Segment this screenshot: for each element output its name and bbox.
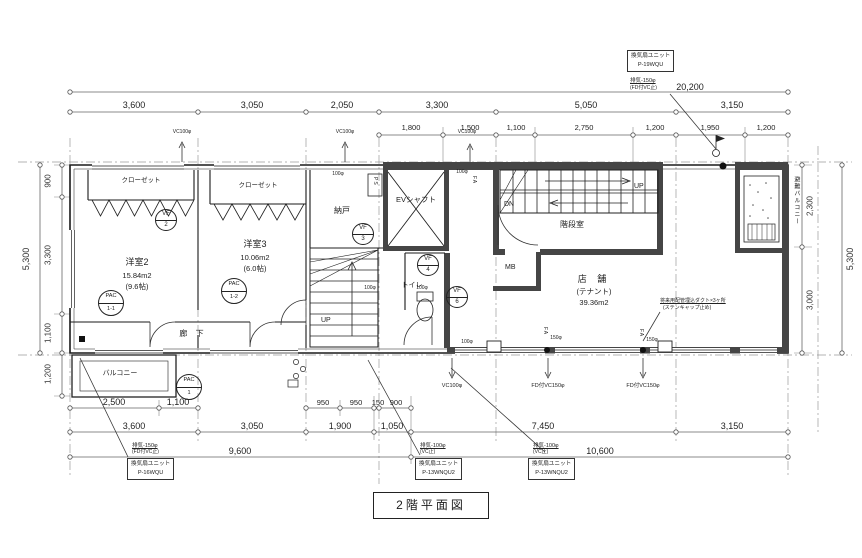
room-tenant-area: 39.36m2 xyxy=(579,299,608,307)
mb-label: MB xyxy=(505,264,516,272)
dim-b3-2: 10,600 xyxy=(586,447,614,457)
right-stairs xyxy=(500,170,658,213)
dim-top-sub-6: 1,950 xyxy=(701,124,720,132)
dim-right-seg-1: 2,300 xyxy=(806,196,815,216)
fan-unit-note-bottom-right: 換気扇ユニット P-13WNQU2 xyxy=(528,458,575,480)
pipe-fdvc150-2: FD付VC150φ xyxy=(626,383,659,389)
fan-unit-note-bottom-left: 換気扇ユニット P-16WQU xyxy=(127,458,174,480)
fan-unit-note-top-right: 換気扇ユニット P-19WQU xyxy=(627,50,674,72)
pipe-100-1: 100φ xyxy=(332,172,344,178)
pipe-100-5: 100φ xyxy=(461,340,473,346)
tenant-duct-note-2: (ステンキャップ止め) xyxy=(663,306,711,312)
room-closet-2: クローゼット xyxy=(239,182,278,189)
vf-3-symbol: VF3 xyxy=(352,223,374,245)
pipe-vc100-bottom: VC100φ xyxy=(442,383,462,389)
dim-top-main-2: 3,050 xyxy=(241,101,264,111)
ev-shaft xyxy=(388,172,444,246)
room-tenant-sub: (テナント) xyxy=(577,288,612,296)
room-corridor: 廊 下 xyxy=(179,330,206,339)
dim-top-main-1: 3,600 xyxy=(123,101,146,111)
room-stair-hall: 階段室 xyxy=(560,221,584,230)
ps-label: PS xyxy=(371,177,377,186)
fa-label-2: FA xyxy=(541,327,547,335)
room-ev-shaft: EVシャフト xyxy=(396,196,436,204)
dim-b2-5: 7,450 xyxy=(532,422,555,432)
dim-b1-5: 150 xyxy=(372,399,385,407)
pipe-150-2: 150φ xyxy=(646,338,658,344)
dim-top-main-6: 3,150 xyxy=(721,101,744,111)
dim-top-sub-5: 1,200 xyxy=(646,124,665,132)
pipe-note-bl-2: (FD付VC止) xyxy=(132,450,159,456)
fan-unit-note-bottom-mid: 換気扇ユニット P-13WNQU2 xyxy=(415,458,462,480)
dim-left-total: 5,300 xyxy=(21,248,31,271)
pipe-note-top-right-2: (FD付VC止) xyxy=(630,86,657,92)
pipe-note-bm-2: (VC止) xyxy=(420,450,435,456)
dim-b2-4: 1,050 xyxy=(381,422,404,432)
pac-1-symbol: PAC1 xyxy=(176,374,202,400)
room-yoshitsu2: 洋室2 xyxy=(125,258,148,268)
drawing-title: 2階平面図 xyxy=(373,492,489,519)
dim-top-sub-1: 1,800 xyxy=(402,124,421,132)
room-evac-balcony: 避難バルコニー xyxy=(792,176,799,225)
room-yoshitsu3-tatami: (6.0帖) xyxy=(244,265,267,273)
room-yoshitsu2-area: 15.84m2 xyxy=(122,272,151,280)
center-stairs xyxy=(310,248,378,347)
room-yoshitsu2-tatami: (9.6帖) xyxy=(126,283,149,291)
dim-right-total: 5,300 xyxy=(845,248,855,271)
dim-b1-6: 900 xyxy=(390,399,403,407)
evac-balcony-outline xyxy=(744,176,779,242)
pac-1-1-symbol: PAC1-1 xyxy=(98,290,124,316)
pipe-100-4: 100φ xyxy=(416,286,428,292)
room-balcony: バルコニー xyxy=(103,370,138,378)
dim-b3-1: 9,600 xyxy=(229,447,252,457)
pipe-note-top-right-1: 排気-150φ xyxy=(630,78,656,84)
room-tenant: 店 舗 xyxy=(578,275,611,285)
dim-left-seg-2: 3,300 xyxy=(44,245,53,265)
dim-b2-2: 3,050 xyxy=(241,422,264,432)
dim-left-below: 1,200 xyxy=(44,364,53,384)
tenant-duct-note-1: 将来用配管埋込ダクト×3ヶ所 xyxy=(660,299,726,305)
pipe-150-1: 150φ xyxy=(550,336,562,342)
pipe-fdvc150-1: FD付VC150φ xyxy=(531,383,564,389)
fa-label-3: FA xyxy=(637,329,643,337)
dim-left-seg-1: 900 xyxy=(44,174,53,187)
vf-6-symbol: VF6 xyxy=(446,286,468,308)
dim-top-sub-4: 2,750 xyxy=(575,124,594,132)
pipe-100-3: 100φ xyxy=(364,286,376,292)
vf-2-symbol: VF2 xyxy=(155,209,177,231)
floor-plan-page: 20,200 3,600 3,050 2,050 3,300 5,050 3,1… xyxy=(0,0,862,558)
pipe-vc100-top3: VC100φ xyxy=(458,130,477,136)
doors xyxy=(150,205,538,347)
up-label-center: UP xyxy=(321,317,331,325)
vf-4-symbol: VF4 xyxy=(417,254,439,276)
dim-right-seg-2: 3,000 xyxy=(806,290,815,310)
dim-left-seg-3: 1,100 xyxy=(44,323,53,343)
dim-top-total: 20,200 xyxy=(676,83,704,93)
room-yoshitsu3-area: 10.06m2 xyxy=(240,254,269,262)
pipe-vc100-top1: VC100φ xyxy=(173,130,192,136)
dim-b2-3: 1,900 xyxy=(329,422,352,432)
dim-b2-6: 3,150 xyxy=(721,422,744,432)
dim-top-main-4: 3,300 xyxy=(426,101,449,111)
hatched-walls xyxy=(383,162,788,353)
pipe-note-br-2: (VC止) xyxy=(533,450,548,456)
dim-b2-1: 3,600 xyxy=(123,422,146,432)
dim-top-main-5: 5,050 xyxy=(575,101,598,111)
dim-b1-1: 2,500 xyxy=(103,398,126,408)
room-yoshitsu3: 洋室3 xyxy=(243,240,266,250)
up-label-right: UP xyxy=(634,183,644,191)
dimension-lines xyxy=(38,90,844,464)
dim-b1-3: 950 xyxy=(317,399,330,407)
dn-label: DN xyxy=(504,201,514,209)
pac-1-2-symbol: PAC1-2 xyxy=(221,278,247,304)
dim-b1-4: 950 xyxy=(350,399,363,407)
fa-label-1: FA xyxy=(470,176,476,184)
dim-top-sub-7: 1,200 xyxy=(757,124,776,132)
dim-top-sub-3: 1,100 xyxy=(507,124,526,132)
room-closet-1: クローゼット xyxy=(122,177,161,184)
pipe-vc100-top2: VC100φ xyxy=(336,130,355,136)
pipe-100-2: 100φ xyxy=(456,170,468,176)
dim-top-main-3: 2,050 xyxy=(331,101,354,111)
room-nando: 納戸 xyxy=(334,207,350,216)
